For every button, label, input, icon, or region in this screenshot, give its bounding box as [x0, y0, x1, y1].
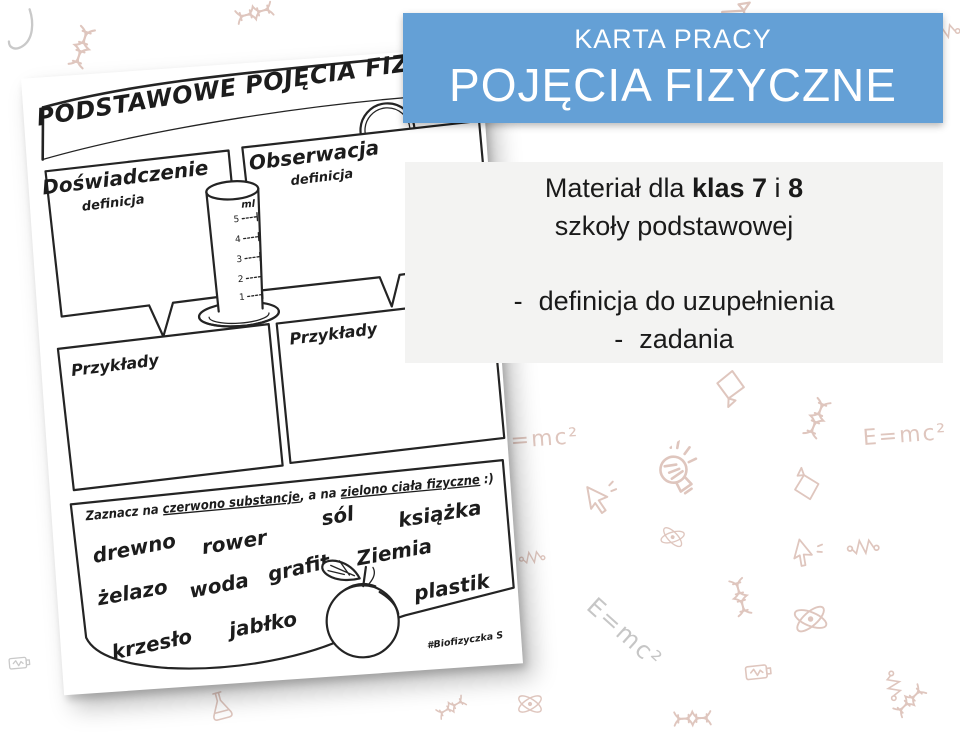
resistor-doodle-icon: [834, 524, 893, 568]
megaphone-doodle-icon: [776, 455, 831, 511]
dna-doodle-icon: [785, 383, 846, 458]
audience-bold-1: klas 7: [692, 173, 767, 203]
hook-doodle-icon: [2, 2, 48, 63]
bullet-dash: -: [614, 324, 623, 354]
cylinder-tick-3: 3: [236, 255, 242, 265]
atom-doodle-icon: [512, 688, 548, 725]
cylinder-tick-5: 5: [233, 215, 239, 225]
bullet-text-1: definicja do uzupełnienia: [539, 286, 835, 316]
bullet-text-2: zadania: [639, 324, 734, 354]
megaphone-doodle-icon: [706, 361, 759, 418]
atom-doodle-icon: [784, 594, 837, 648]
battery-doodle-icon: [1, 648, 40, 682]
cylinder-tick-1: 1: [239, 293, 245, 303]
audience-prefix: Materiał dla: [545, 173, 692, 203]
examples-box-left: Przykłady: [57, 324, 283, 491]
audience-line: Materiał dla klas 7 i 8: [405, 173, 943, 204]
battery-doodle-icon: [734, 654, 784, 696]
audience-line-2: szkoły podstawowej: [405, 211, 943, 242]
audience-mid: i: [767, 173, 788, 203]
bullet-dash: -: [514, 286, 523, 316]
cylinder-tick-4: 4: [235, 235, 242, 245]
audience-bold-2: 8: [788, 173, 803, 203]
task-box: Zaznacz na czerwono substancje, a na zie…: [70, 460, 518, 677]
slide-title-banner: KARTA PRACY POJĘCIA FIZYCZNE: [403, 13, 943, 123]
dna-doodle-icon: [219, 0, 286, 39]
info-box: Materiał dla klas 7 i 8 szkoły podstawow…: [405, 162, 943, 363]
cylinder-unit-label: ml: [241, 199, 256, 211]
bulb-doodle-icon: [641, 435, 720, 514]
emc2-doodle: E=mc²: [862, 420, 948, 451]
atom-doodle-icon: [652, 518, 692, 560]
author-signature: #Biofizyczka S: [426, 630, 504, 652]
cylinder-tick-2: 2: [237, 275, 243, 285]
bullet-definicja: -definicja do uzupełnienia: [405, 286, 943, 317]
dna-doodle-icon: [714, 564, 767, 635]
cursor-doodle-icon: [783, 532, 826, 580]
banner-kicker: KARTA PRACY: [403, 24, 943, 55]
emc2-doodle: E=mc²: [581, 592, 668, 674]
banner-title: POJĘCIA FIZYCZNE: [403, 58, 943, 112]
dna-doodle-icon: [667, 694, 714, 743]
worksheet-preview: PODSTAWOWE POJĘCIA FIZYCZNE Doświadczeni…: [21, 47, 523, 696]
flask-doodle-icon: [198, 686, 244, 732]
dna-doodle-icon: [423, 683, 474, 734]
cursor-doodle-icon: [578, 475, 624, 528]
bullet-zadania: -zadania: [405, 324, 943, 355]
